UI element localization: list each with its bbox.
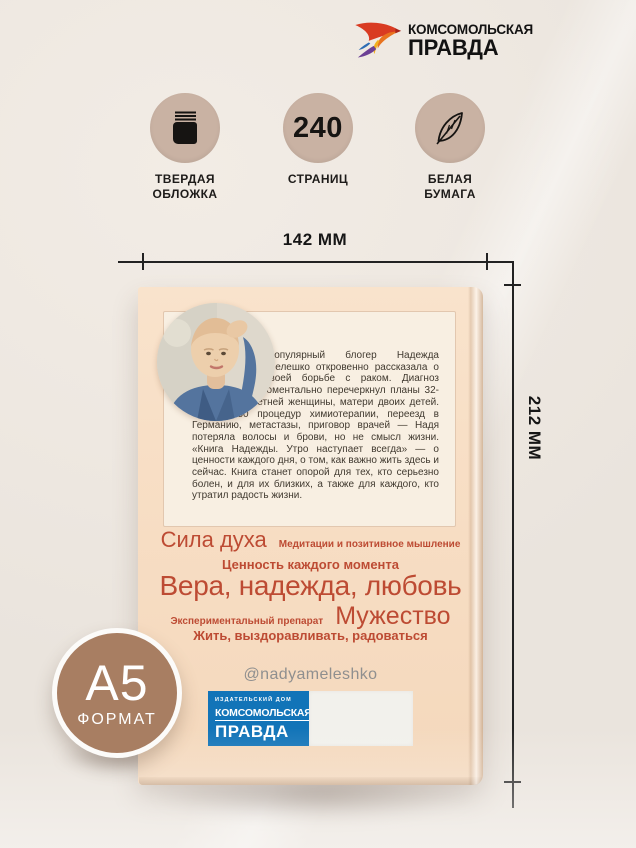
publisher-logo-row: ИЗДАТЕЛЬСКИЙ ДОМ КОМСОМОЛЬСКАЯ ПРАВДА bbox=[138, 691, 483, 746]
keyword-courage: Мужество bbox=[335, 602, 450, 631]
publisher-house-label: ИЗДАТЕЛЬСКИЙ ДОМ bbox=[215, 697, 302, 703]
height-dimension-label: 212 ММ bbox=[524, 396, 544, 460]
publisher-header-logo: КОМСОМОЛЬСКАЯ ПРАВДА bbox=[352, 18, 533, 62]
format-size: А5 bbox=[85, 658, 148, 708]
width-dimension-label: 142 ММ bbox=[283, 230, 347, 250]
height-dimension-line bbox=[512, 261, 514, 808]
feature-circle: 240 bbox=[283, 93, 353, 163]
book-back-cover: Популярный блогер Надежда Мелешко откров… bbox=[138, 287, 483, 785]
feature-label: БЕЛАЯ БУМАГА bbox=[402, 172, 498, 201]
brand-line2: ПРАВДА bbox=[408, 37, 533, 58]
author-photo bbox=[157, 303, 275, 421]
format-label: ФОРМАТ bbox=[77, 711, 157, 729]
publisher-header-text: КОМСОМОЛЬСКАЯ ПРАВДА bbox=[408, 23, 533, 58]
keyword-strength: Сила духа bbox=[161, 527, 267, 553]
keyword-row-4: Экспериментальный препарат Мужество bbox=[138, 602, 483, 631]
keyword-faith-hope-love: Вера, надежда, любовь bbox=[160, 570, 462, 602]
width-dimension-line bbox=[118, 261, 514, 263]
keyword-row-3: Вера, надежда, любовь bbox=[138, 570, 483, 602]
feature-pages: 240 СТРАНИЦ bbox=[248, 93, 388, 187]
feature-circle bbox=[415, 93, 485, 163]
publisher-name-line1: КОМСОМОЛЬСКАЯ bbox=[215, 707, 312, 721]
product-card: КОМСОМОЛЬСКАЯ ПРАВДА ТВЕРДАЯ ОБЛОЖКА 240… bbox=[0, 0, 636, 848]
keyword-live-recover-rejoice: Жить, выздоравливать, радоваться bbox=[193, 628, 428, 643]
feature-circle bbox=[150, 93, 220, 163]
publisher-logo-box: ИЗДАТЕЛЬСКИЙ ДОМ КОМСОМОЛЬСКАЯ ПРАВДА bbox=[208, 691, 309, 746]
width-tick-left bbox=[142, 253, 144, 270]
feature-label: СТРАНИЦ bbox=[270, 172, 366, 187]
kp-bird-icon bbox=[352, 18, 402, 62]
barcode-sticker bbox=[309, 691, 413, 746]
feature-hardcover: ТВЕРДАЯ ОБЛОЖКА bbox=[115, 93, 255, 201]
feature-label: ТВЕРДАЯ ОБЛОЖКА bbox=[137, 172, 233, 201]
book-icon bbox=[165, 108, 205, 148]
publisher-name-line2: ПРАВДА bbox=[215, 722, 302, 742]
author-social-handle: @nadyameleshko bbox=[138, 666, 483, 684]
keyword-experimental-drug: Экспериментальный препарат bbox=[170, 616, 323, 627]
format-badge: А5 ФОРМАТ bbox=[52, 628, 182, 758]
author-portrait-icon bbox=[157, 303, 275, 421]
feather-icon bbox=[430, 108, 470, 148]
keyword-meditation: Медитации и позитивное мышление bbox=[279, 539, 461, 550]
keyword-row-5: Жить, выздоравливать, радоваться bbox=[138, 628, 483, 643]
height-tick-top bbox=[504, 284, 521, 286]
width-tick-right bbox=[486, 253, 488, 270]
page-count: 240 bbox=[293, 112, 343, 145]
feature-paper: БЕЛАЯ БУМАГА bbox=[380, 93, 520, 201]
keyword-row-1: Сила духа Медитации и позитивное мышлени… bbox=[138, 527, 483, 553]
height-tick-bottom bbox=[504, 781, 521, 783]
